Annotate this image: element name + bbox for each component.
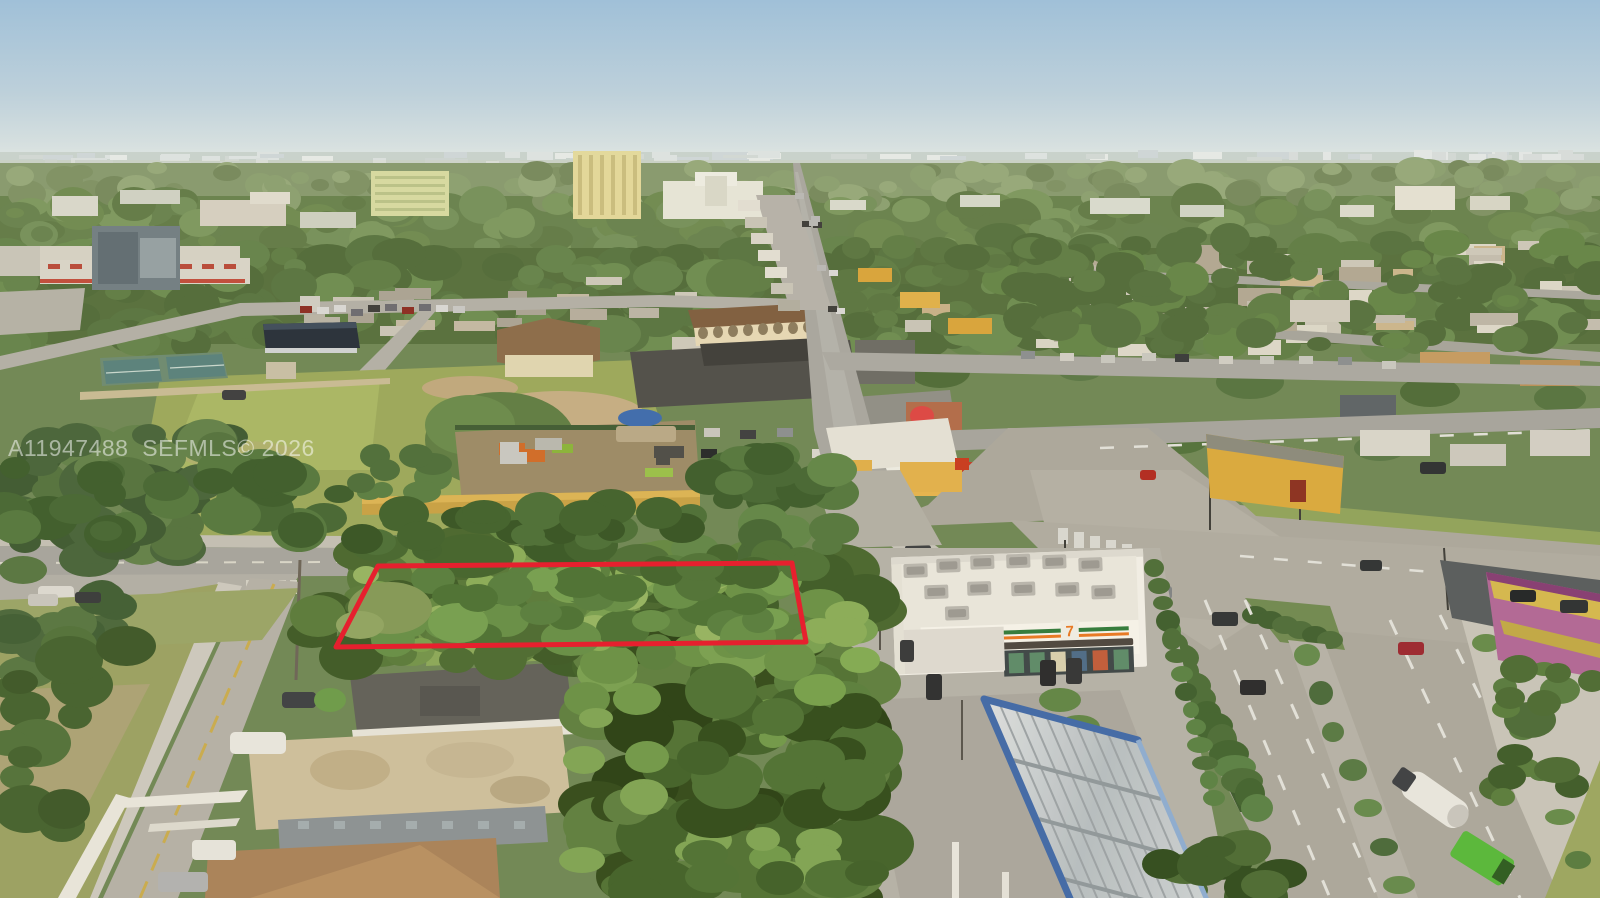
svg-text:A11947488 SEFMLS© 2026: A11947488 SEFMLS© 2026 (8, 435, 315, 461)
